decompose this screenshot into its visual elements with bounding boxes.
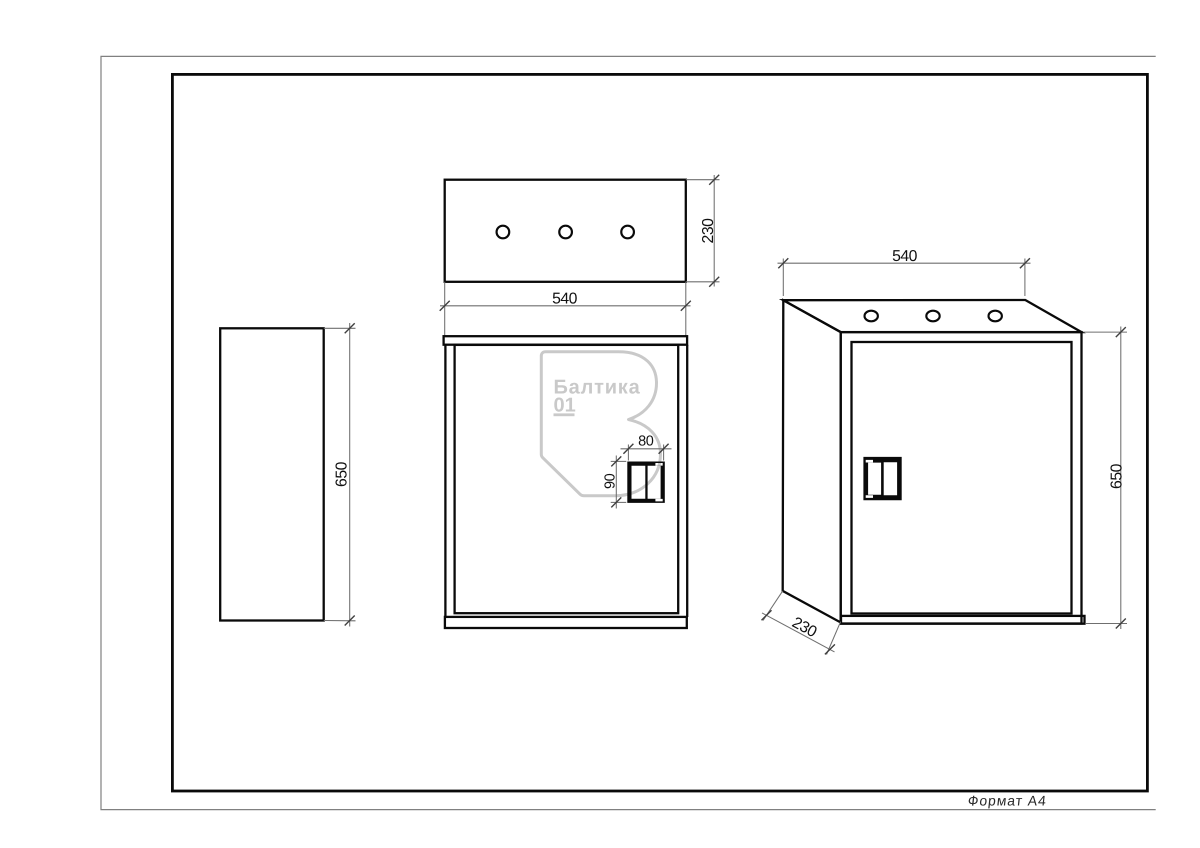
svg-text:80: 80 [638, 433, 654, 449]
svg-text:650: 650 [1108, 463, 1125, 489]
svg-text:230: 230 [700, 218, 717, 244]
svg-text:540: 540 [892, 248, 918, 265]
svg-text:90: 90 [602, 473, 618, 489]
svg-text:230: 230 [789, 614, 820, 641]
svg-text:Формат А4: Формат А4 [967, 792, 1048, 808]
svg-text:01: 01 [554, 394, 576, 416]
svg-text:540: 540 [552, 290, 578, 307]
svg-text:650: 650 [334, 461, 351, 487]
